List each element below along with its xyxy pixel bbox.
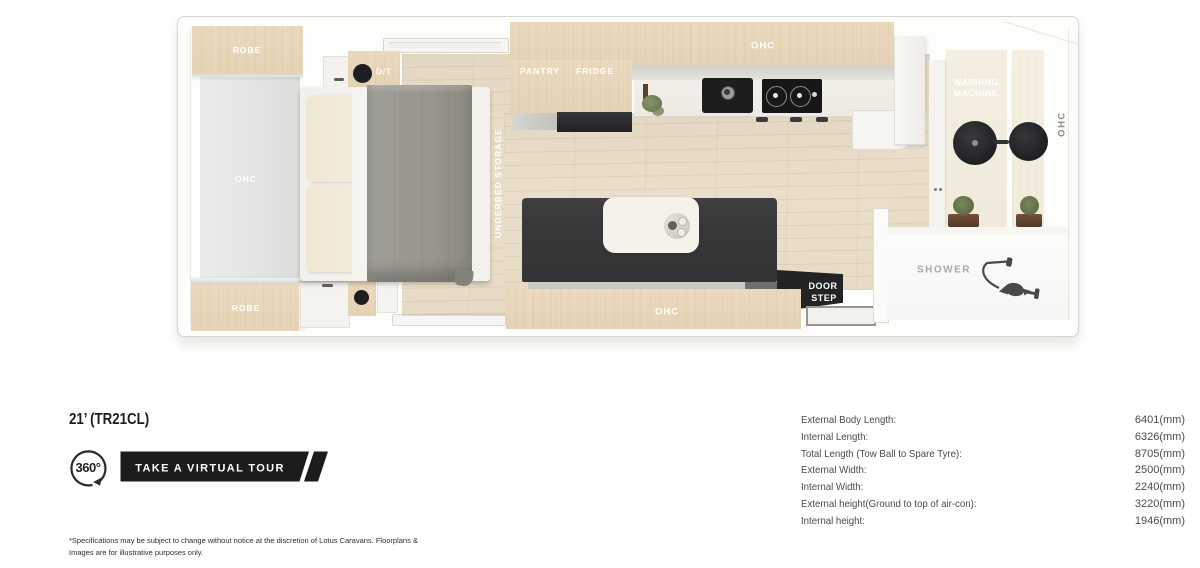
svg-text:TAKE A VIRTUAL TOUR: TAKE A VIRTUAL TOUR xyxy=(135,463,285,475)
svg-text:360°: 360° xyxy=(76,460,101,475)
